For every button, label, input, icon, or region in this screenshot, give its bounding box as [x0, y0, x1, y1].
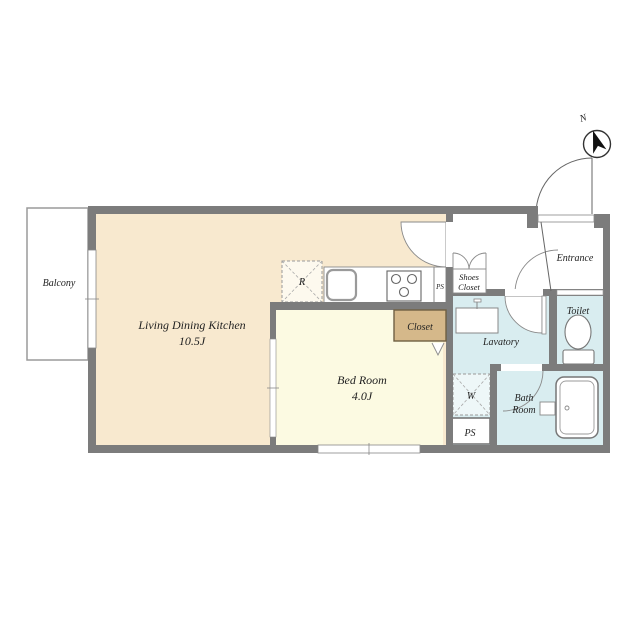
entrance-door-sill — [538, 215, 594, 222]
entrance-step-line — [541, 222, 551, 291]
refrigerator-label: R — [298, 277, 305, 288]
entrance-label: Entrance — [556, 253, 594, 264]
lavatory-door-opening — [505, 289, 543, 296]
bathroom-label-2: Room — [511, 405, 535, 416]
bedroom-window — [318, 443, 420, 455]
shoes-closet-label-1: Shoes — [459, 272, 480, 282]
ps-upper-label: PS — [435, 283, 444, 291]
ldk-size-label: 10.5J — [179, 334, 206, 348]
bathroom-label-1: Bath — [515, 393, 534, 404]
kitchen-sink — [327, 270, 356, 300]
north-compass-icon: N — [577, 112, 610, 158]
floor-plan-drawing: N Balcony Living Dining Kitchen 10.5J Be… — [0, 0, 640, 640]
svg-text:N: N — [577, 112, 589, 125]
entrance-door-arc — [536, 158, 592, 214]
stove — [387, 271, 421, 301]
toilet-door-sill — [557, 290, 603, 295]
ps-lower-label: PS — [463, 428, 475, 439]
balcony-label: Balcony — [43, 278, 76, 289]
floor-plan: N Balcony Living Dining Kitchen 10.5J Be… — [0, 0, 640, 640]
closet-label: Closet — [407, 322, 433, 333]
lavatory-label: Lavatory — [482, 337, 520, 348]
ldk-door-opening — [446, 222, 453, 267]
toilet-door-arc — [515, 250, 558, 293]
ldk-label: Living Dining Kitchen — [137, 318, 245, 332]
bath-counter-box — [540, 402, 555, 415]
bedroom-size-label: 4.0J — [352, 389, 373, 403]
shoes-closet-label-2: Closet — [458, 282, 480, 292]
toilet-label: Toilet — [567, 306, 590, 317]
bathtub — [556, 377, 598, 438]
lavatory-door-leaf — [542, 296, 546, 334]
toilet-fixture — [563, 315, 594, 364]
bathroom-door-opening — [501, 364, 542, 371]
bedroom-label: Bed Room — [337, 373, 387, 387]
